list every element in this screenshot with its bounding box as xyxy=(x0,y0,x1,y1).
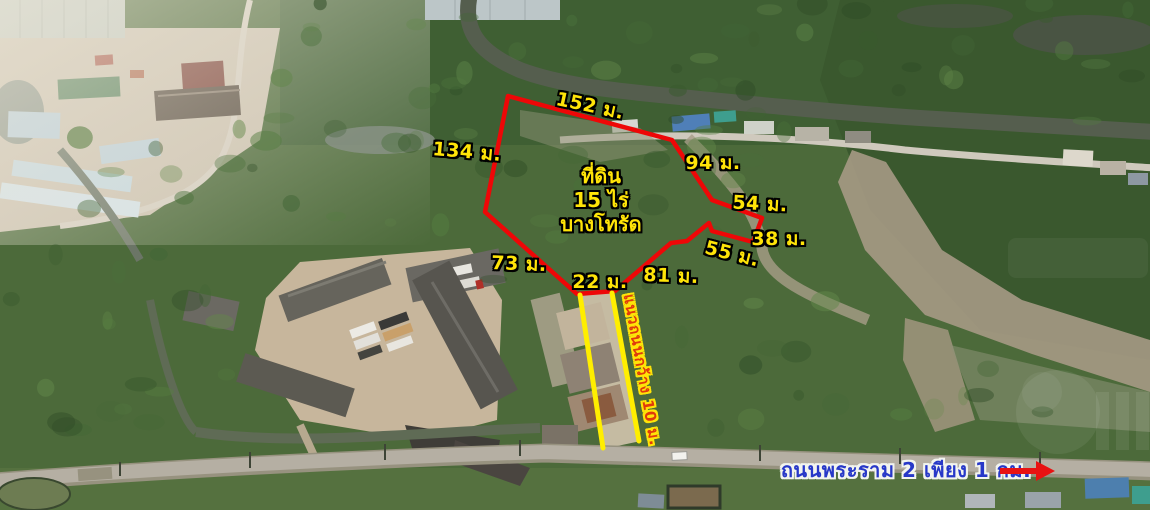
measurement-label-bottom-right: 81 ม. xyxy=(643,260,699,292)
aerial-photo-background xyxy=(0,0,1150,510)
annotated-aerial-photo: 152 ม. 134 ม. 94 ม. 54 ม. 38 ม. 55 ม. 81… xyxy=(0,0,1150,510)
plot-title-line2: 15 ไร่ xyxy=(560,188,641,212)
main-road-distance-label: ถนนพระราม 2 เพียง 1 กม. xyxy=(781,454,1031,486)
plot-title-line1: ที่ดิน xyxy=(560,164,641,188)
measurement-label-upper-right: 94 ม. xyxy=(685,148,740,178)
plot-title: ที่ดิน 15 ไร่ บางโทรัด xyxy=(560,164,641,236)
measurement-label-right-1: 54 ม. xyxy=(732,188,789,221)
measurement-label-bottom-left: 73 ม. xyxy=(491,248,547,280)
plot-title-line3: บางโทรัด xyxy=(560,212,641,236)
arrow-right-icon xyxy=(1000,460,1056,482)
measurement-label-left: 134 ม. xyxy=(431,134,502,170)
measurement-label-frontage: 22 ม. xyxy=(572,267,627,297)
